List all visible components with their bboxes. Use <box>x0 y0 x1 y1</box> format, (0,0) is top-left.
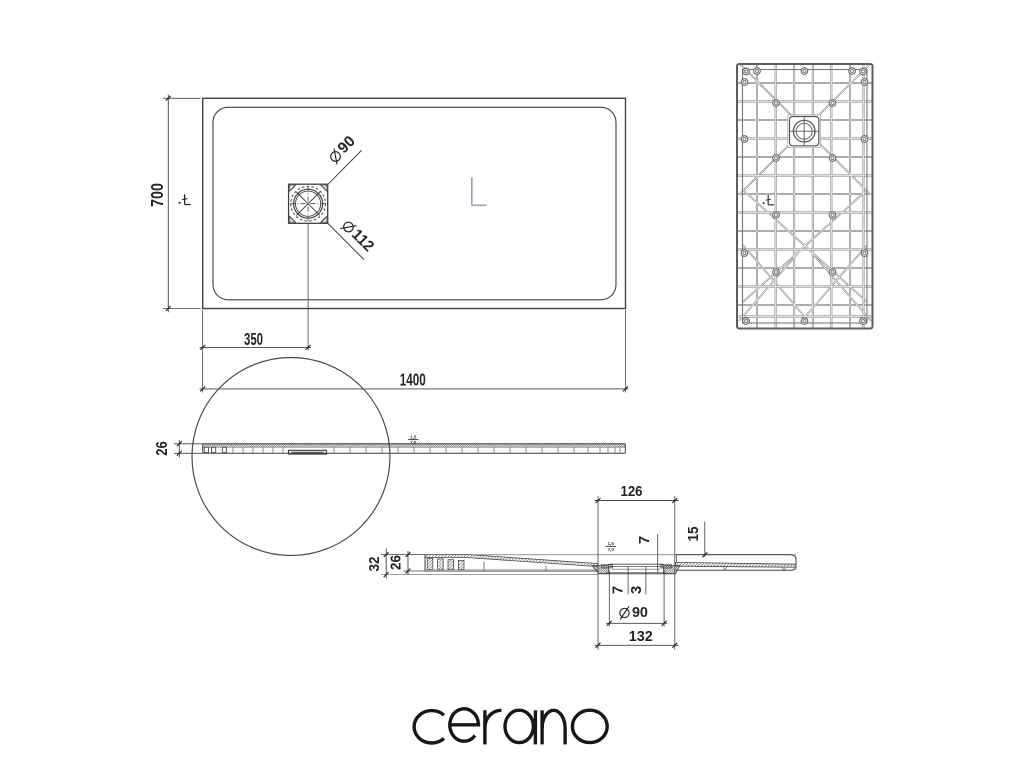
svg-text:1400: 1400 <box>400 369 426 389</box>
svg-text:7: 7 <box>610 586 627 594</box>
svg-text:7,0: 7,0 <box>410 440 417 445</box>
svg-text:26: 26 <box>154 441 171 456</box>
svg-text:7,0: 7,0 <box>608 547 615 552</box>
svg-text:700: 700 <box>147 183 167 207</box>
svg-text:15: 15 <box>685 527 702 542</box>
svg-text:32: 32 <box>366 557 383 572</box>
svg-text:90: 90 <box>632 604 648 621</box>
svg-text:3: 3 <box>628 586 645 594</box>
svg-text:132: 132 <box>629 628 653 645</box>
svg-text:26: 26 <box>388 555 405 570</box>
svg-text:1,5: 1,5 <box>608 541 615 546</box>
svg-text:350: 350 <box>244 329 263 349</box>
svg-text:1,5: 1,5 <box>410 434 417 439</box>
svg-text:126: 126 <box>621 483 643 500</box>
svg-text:7: 7 <box>636 536 653 544</box>
